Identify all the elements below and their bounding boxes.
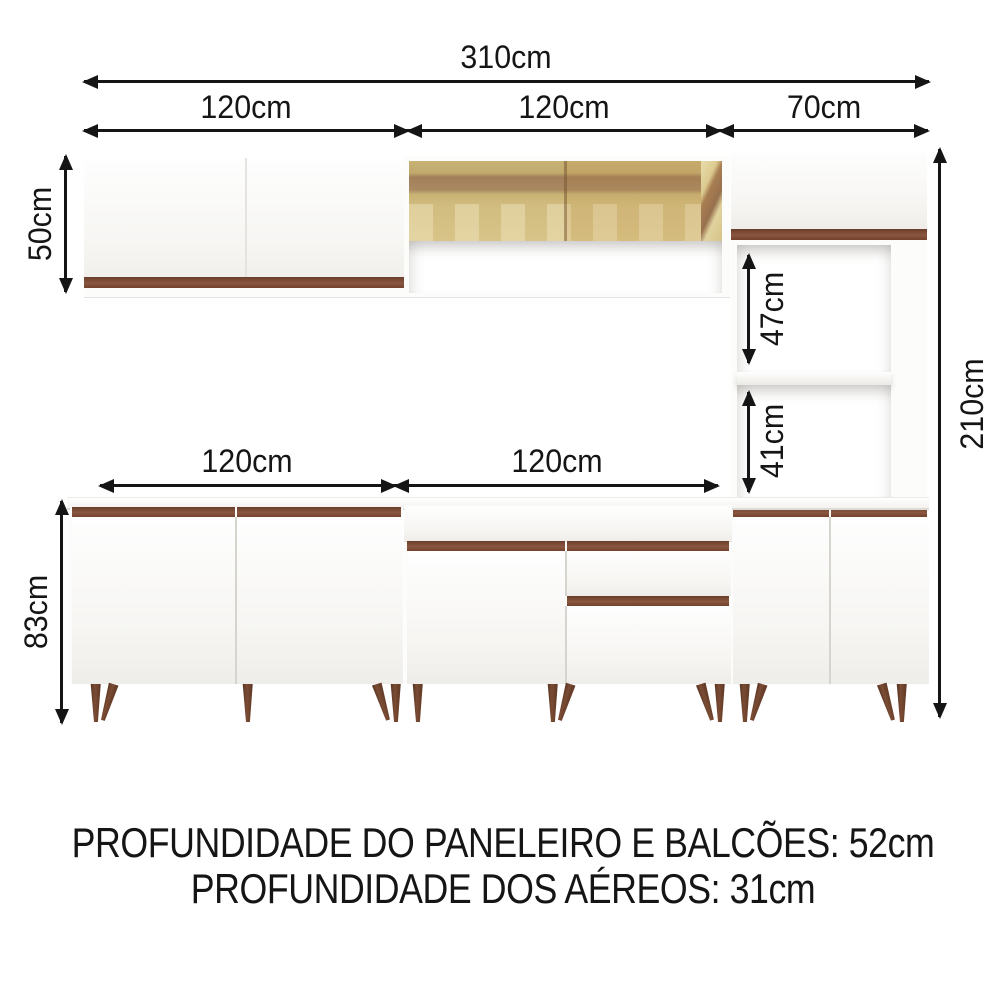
depth-note-line-2: PROFUNDIDADE DOS AÉREOS: 31cm [191, 866, 815, 912]
leg [410, 684, 425, 722]
leg [737, 684, 752, 722]
leg [693, 682, 718, 723]
dim-base-segment-1-arrow [100, 484, 395, 487]
leg [874, 682, 899, 723]
dim-nicho-inferior-arrow [747, 392, 750, 492]
paneleiro-base-door-left [733, 517, 829, 684]
dim-base-segment-2-arrow [395, 484, 718, 487]
drawer-1 [565, 551, 731, 596]
balcao-middle-top-rail [404, 507, 732, 542]
kitchen-dimension-diagram: 310cm 120cm 120cm 70cm 120cm 120cm 50cm … [0, 0, 1000, 1000]
balcao-left-strip-1 [72, 507, 235, 517]
leg [894, 684, 909, 722]
leg [712, 684, 727, 722]
leg [369, 682, 394, 723]
paneleiro-top-door [731, 150, 927, 229]
dim-total-height-label: 210cm [955, 358, 989, 449]
dim-balcao-height-label: 83cm [19, 575, 53, 649]
balcao-middle-door [407, 551, 565, 684]
aereo-left-door-1 [84, 158, 245, 288]
aereo-left-door-2 [245, 158, 406, 288]
balcao-left-door-2 [235, 517, 403, 684]
drawer-2-strip [567, 596, 729, 606]
balcao-middle-door-strip [407, 541, 565, 551]
paneleiro-base-door-right [829, 517, 929, 684]
paneleiro-wood-strip [731, 229, 927, 240]
dim-top-segment-3-label: 70cm [787, 90, 861, 124]
glass-cabinet-wood-end [701, 161, 722, 241]
glass-right-door-tint [566, 161, 722, 241]
dim-top-segment-2-label: 120cm [518, 90, 609, 124]
drawer-2 [565, 606, 731, 684]
dim-balcao-height-arrow [60, 501, 63, 723]
aereo-left-bottom-board [84, 288, 404, 298]
leg [88, 684, 103, 722]
paneleiro-shelf [737, 372, 891, 385]
dim-aereo-height-arrow [64, 156, 67, 292]
depth-note-line-1: PROFUNDIDADE DO PANELEIRO E BALCÕES: 52c… [72, 820, 935, 866]
dim-nicho-superior-label: 47cm [755, 272, 789, 346]
glass-door-divider [564, 161, 567, 241]
drawer-1-strip [567, 541, 729, 551]
dim-base-segment-1-label: 120cm [201, 444, 292, 478]
aereo-open-niche [409, 241, 722, 293]
leg [388, 684, 403, 722]
leg [545, 684, 560, 722]
dim-total-width-label: 310cm [460, 40, 551, 74]
dim-base-segment-2-label: 120cm [511, 444, 602, 478]
balcao-left-strip-2 [237, 507, 401, 517]
dim-nicho-superior-arrow [747, 255, 750, 363]
dim-top-segment-2-arrow [408, 129, 720, 132]
dim-top-segment-1-label: 120cm [200, 90, 291, 124]
aereo-left-wood-strip [84, 277, 404, 288]
dim-total-width-arrow [84, 80, 929, 83]
dim-top-segment-3-arrow [720, 129, 928, 132]
balcao-left-door-1 [72, 517, 235, 684]
dim-top-segment-1-arrow [84, 129, 408, 132]
dim-nicho-inferior-label: 41cm [755, 404, 789, 478]
dim-aereo-height-label: 50cm [23, 187, 57, 261]
dim-total-height-arrow [938, 149, 941, 717]
leg [240, 684, 255, 722]
